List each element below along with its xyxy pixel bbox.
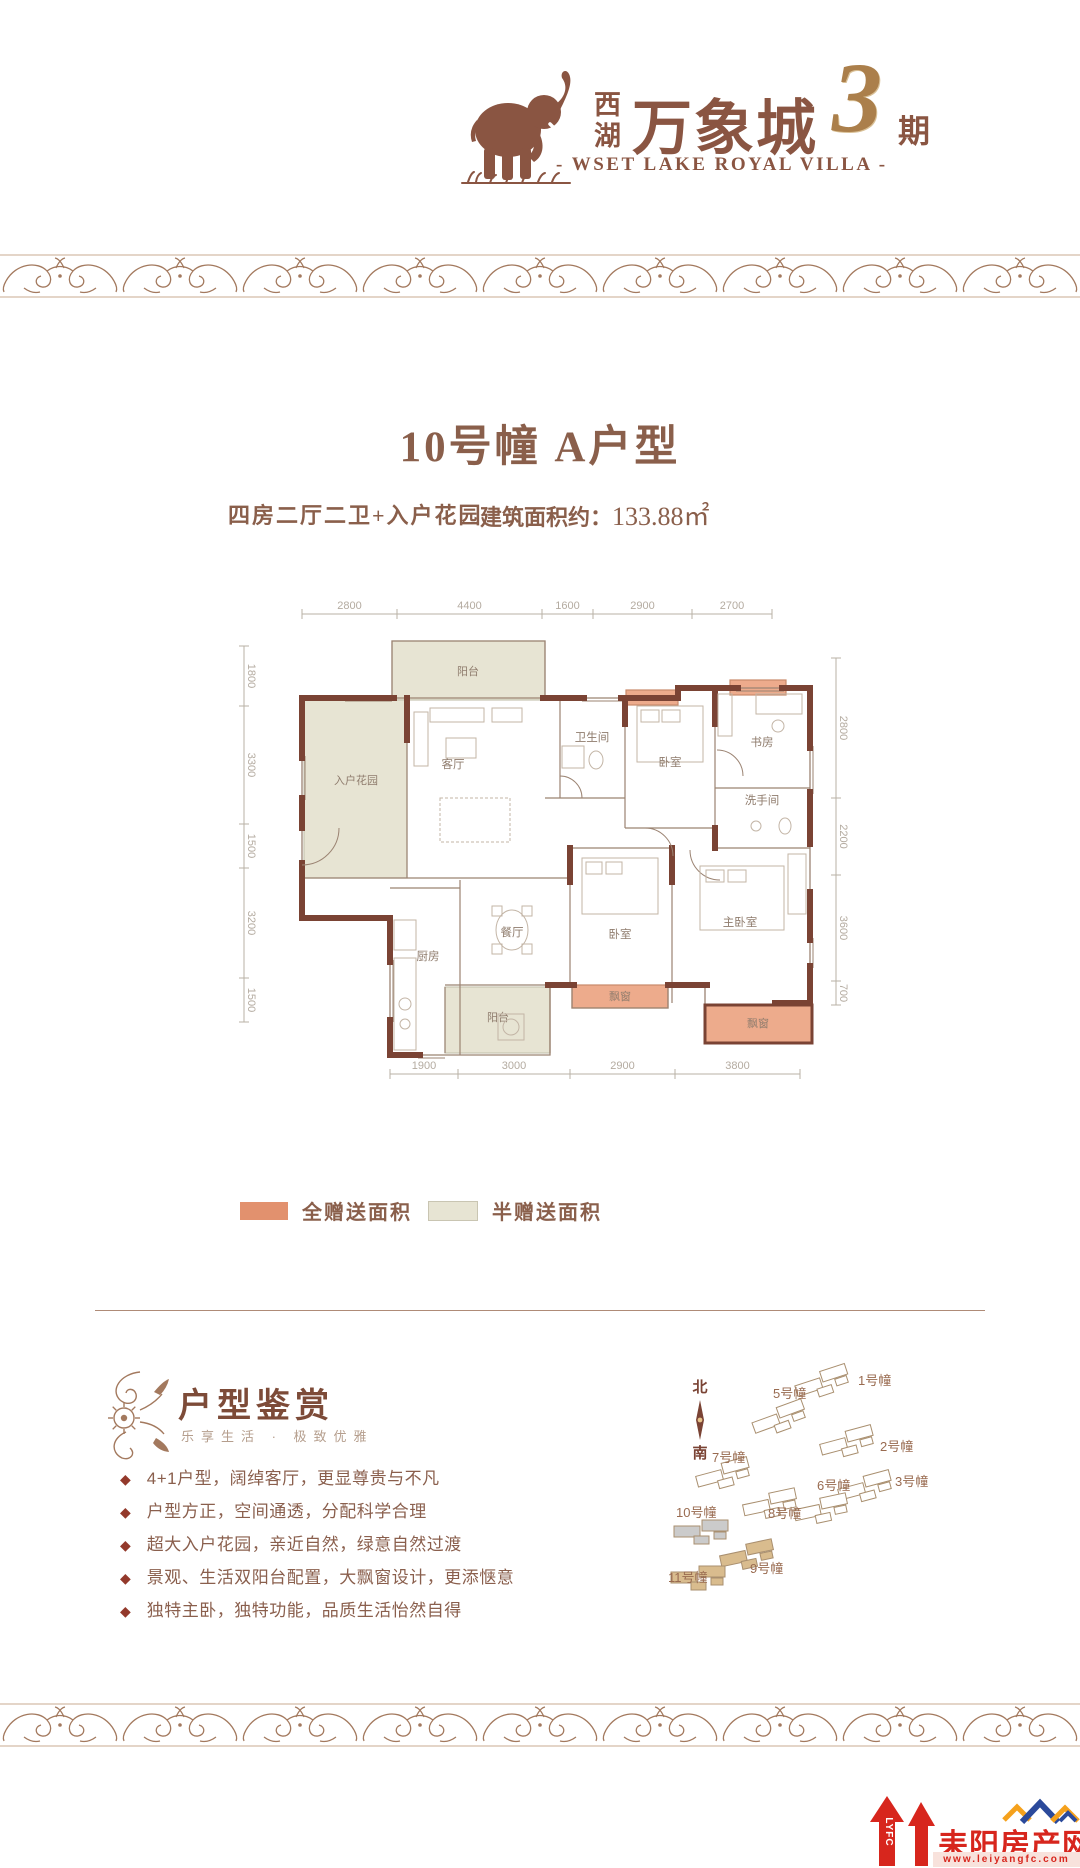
- diamond-bullet-icon: ◆: [120, 1504, 131, 1521]
- building-footprint: [674, 1520, 728, 1544]
- room-label: 书房: [751, 736, 774, 749]
- dimension-label: 1500: [245, 834, 257, 858]
- flourish-motif: [963, 258, 1076, 293]
- dimension-label: 4400: [457, 600, 481, 612]
- diamond-bullet-icon: ◆: [120, 1471, 131, 1488]
- half-gift-zone: [304, 700, 407, 878]
- legend-full-gift: 全赠送面积: [240, 1196, 412, 1225]
- dimension-label: 3000: [502, 1060, 526, 1072]
- diamond-bullet-icon: ◆: [120, 1537, 131, 1554]
- floorplan-drawing: 阳台入户花园阳台飘窗飘窗2800440016002900270019003000…: [200, 498, 880, 1098]
- dimension-label: 3200: [245, 911, 257, 935]
- footer-abbr: LYFC: [883, 1817, 894, 1846]
- building-label: 10号幢: [676, 1505, 716, 1520]
- feature-text: 4+1户型，阔绰客厅，更显尊贵与不凡: [147, 1464, 440, 1489]
- zone-label: 飘窗: [609, 989, 631, 1003]
- feature-text: 超大入户花园，亲近自然，绿意自然过渡: [147, 1530, 462, 1555]
- site-plan: 北南1号幢5号幢2号幢7号幢3号幢6号幢8号幢10号幢9号幢11号幢: [540, 1336, 980, 1636]
- compass-south-label: 南: [692, 1444, 707, 1462]
- floral-ornament-icon: [98, 1366, 170, 1466]
- room-label: 卧室: [609, 927, 632, 941]
- features-title: 户型鉴赏: [178, 1378, 334, 1427]
- zone-label: 飘窗: [747, 1016, 769, 1030]
- building-label: 6号幢: [817, 1478, 850, 1493]
- flyer-page: 西湖 万象城 3 期 - WSET LAKE ROYAL VILLA - 10号…: [0, 0, 1080, 1868]
- dimension-label: 700: [837, 984, 849, 1002]
- half-gift-swatch: [428, 1201, 478, 1221]
- room-label: 餐厅: [501, 925, 524, 939]
- flourish-motif: [243, 1707, 356, 1742]
- flourish-motif: [483, 258, 596, 293]
- feature-text: 户型方正，空间通透，分配科学合理: [147, 1497, 427, 1522]
- building-footprint: [750, 1399, 809, 1440]
- flourish-motif: [3, 1707, 116, 1742]
- features-subtitle: 乐享生活 · 极致优雅: [181, 1426, 374, 1445]
- grass-icon: [462, 172, 570, 183]
- feature-item: ◆户型方正，空间通透，分配科学合理: [120, 1497, 514, 1530]
- building-label: 3号幢: [895, 1474, 928, 1489]
- dimension-label: 1900: [412, 1060, 436, 1072]
- flourish-motif: [123, 258, 236, 293]
- ornament-band-bottom: [0, 1702, 1080, 1748]
- flourish-motif: [123, 1707, 236, 1742]
- room-label: 主卧室: [723, 915, 758, 929]
- building-label: 5号幢: [773, 1386, 806, 1401]
- legend-half-gift: 半赠送面积: [428, 1196, 602, 1225]
- features-list: ◆4+1户型，阔绰客厅，更显尊贵与不凡 ◆户型方正，空间通透，分配科学合理 ◆超…: [120, 1464, 514, 1629]
- flourish-motif: [603, 258, 716, 293]
- building-label: 2号幢: [880, 1439, 913, 1454]
- dimension-label: 1600: [555, 600, 579, 612]
- diamond-bullet-icon: ◆: [120, 1603, 131, 1620]
- compass-north-label: 北: [692, 1379, 707, 1396]
- brand-phase-suffix: 期: [898, 106, 930, 152]
- room-label: 厨房: [417, 950, 440, 963]
- feature-item: ◆超大入户花园，亲近自然，绿意自然过渡: [120, 1530, 514, 1563]
- section-divider: [95, 1310, 985, 1311]
- dimension-label: 1800: [245, 664, 257, 688]
- half-gift-label: 半赠送面积: [492, 1196, 602, 1225]
- diamond-bullet-icon: ◆: [120, 1570, 131, 1587]
- dimension-label: 3300: [245, 753, 257, 777]
- building-footprint: [818, 1425, 876, 1462]
- flourish-motif: [3, 258, 116, 293]
- flourish-motif: [243, 258, 356, 293]
- flourish-motif: [843, 258, 956, 293]
- dimension-label: 2900: [630, 600, 654, 612]
- building-label: 11号幢: [668, 1570, 708, 1585]
- dimension-label: 3600: [837, 916, 849, 940]
- dimension-label: 2800: [337, 600, 361, 612]
- building-label: 7号幢: [712, 1450, 745, 1465]
- ornament-band-top: [0, 253, 1080, 299]
- arrow-house-icon: LYFC: [870, 1794, 940, 1868]
- full-gift-swatch: [240, 1202, 288, 1220]
- flourish-motif: [723, 258, 836, 293]
- brand-cn-small: 西湖: [594, 90, 621, 152]
- building-label: 8号幢: [768, 1506, 801, 1521]
- dimension-label: 2900: [610, 1060, 634, 1072]
- feature-text: 独特主卧，独特功能，品质生活怡然自得: [147, 1596, 462, 1621]
- dimension-label: 2800: [837, 716, 849, 740]
- dimension-label: 1500: [245, 988, 257, 1012]
- room-label: 卫生间: [575, 730, 610, 744]
- footer-logo: LYFC 耒阳房产网 www.leiyangfc.com: [870, 1794, 1080, 1868]
- brand-logo: 西湖 万象城 3 期 - WSET LAKE ROYAL VILLA -: [460, 62, 880, 192]
- zone-label: 阳台: [457, 664, 479, 678]
- brand-en-line: - WSET LAKE ROYAL VILLA -: [556, 154, 888, 176]
- zone-label: 入户花园: [334, 773, 378, 787]
- brand-phase-number: 3: [832, 48, 882, 148]
- flourish-motif: [603, 1707, 716, 1742]
- flourish-motif: [723, 1707, 836, 1742]
- flourish-motif: [843, 1707, 956, 1742]
- full-gift-label: 全赠送面积: [302, 1196, 412, 1225]
- room-label: 卧室: [659, 755, 682, 769]
- room-label: 客厅: [442, 757, 465, 771]
- room-label: 洗手间: [745, 793, 780, 807]
- building-label: 1号幢: [858, 1373, 891, 1388]
- flourish-motif: [363, 258, 476, 293]
- unit-title: 10号幢 A户型: [0, 412, 1080, 474]
- flourish-motif: [363, 1707, 476, 1742]
- feature-text: 景观、生活双阳台配置，大飘窗设计，更添惬意: [147, 1563, 515, 1588]
- building-label: 9号幢: [750, 1561, 783, 1576]
- dimension-label: 3800: [725, 1060, 749, 1072]
- flourish-motif: [483, 1707, 596, 1742]
- feature-item: ◆4+1户型，阔绰客厅，更显尊贵与不凡: [120, 1464, 514, 1497]
- dimension-label: 2700: [720, 600, 744, 612]
- flourish-motif: [963, 1707, 1076, 1742]
- feature-item: ◆独特主卧，独特功能，品质生活怡然自得: [120, 1596, 514, 1629]
- footer-url: www.leiyangfc.com: [933, 1852, 1080, 1867]
- dimension-label: 2200: [837, 824, 849, 848]
- feature-item: ◆景观、生活双阳台配置，大飘窗设计，更添惬意: [120, 1563, 514, 1596]
